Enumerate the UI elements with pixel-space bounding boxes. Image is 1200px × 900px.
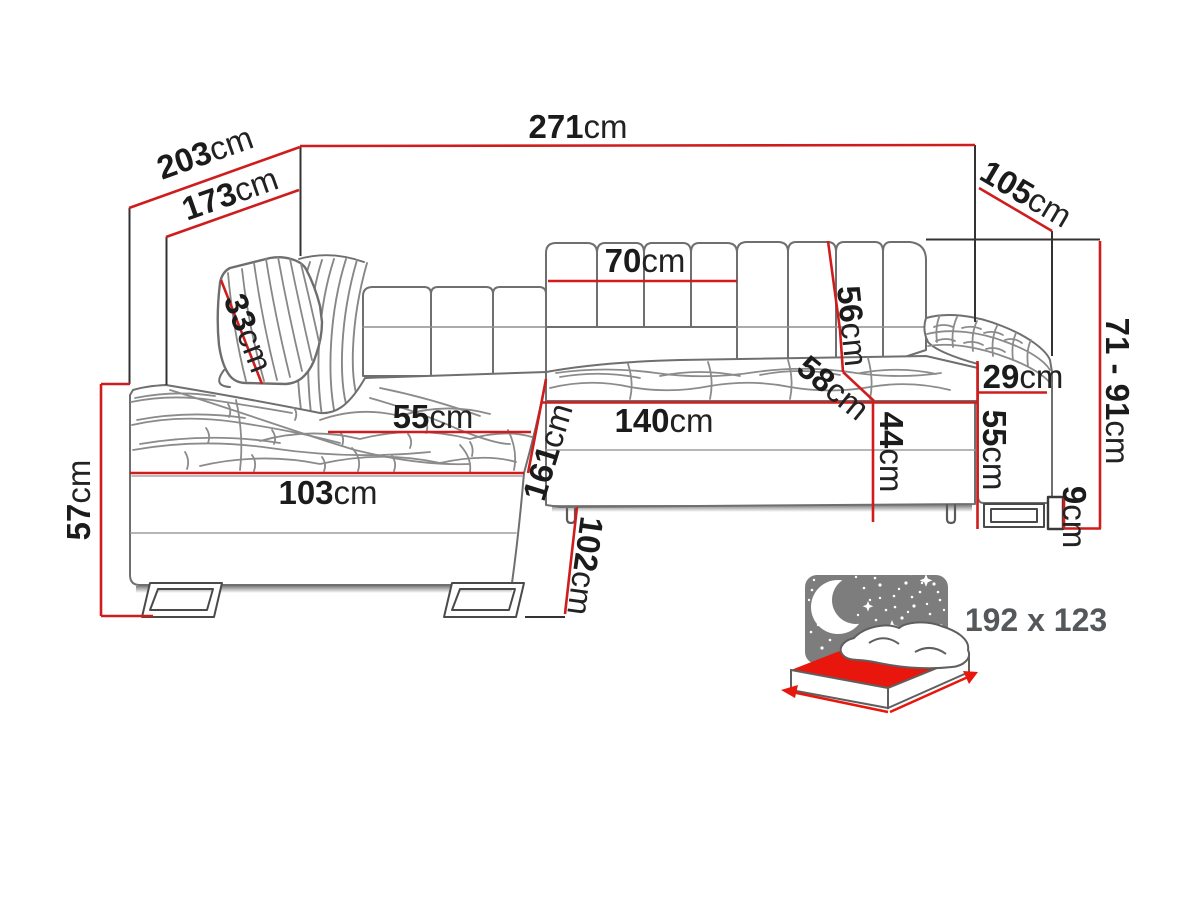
svg-text:57cm: 57cm	[60, 460, 97, 541]
svg-text:71 - 91cm: 71 - 91cm	[1099, 318, 1136, 465]
svg-text:271cm: 271cm	[528, 108, 627, 145]
svg-text:140cm: 140cm	[614, 402, 713, 439]
svg-text:44cm: 44cm	[873, 412, 910, 493]
svg-text:55cm: 55cm	[976, 410, 1013, 491]
svg-text:55cm: 55cm	[393, 398, 474, 435]
svg-text:70cm: 70cm	[605, 242, 686, 279]
svg-text:9cm: 9cm	[1056, 486, 1093, 548]
svg-text:103cm: 103cm	[278, 474, 377, 511]
svg-text:192 x 123: 192 x 123	[965, 602, 1107, 638]
svg-text:29cm: 29cm	[983, 358, 1064, 395]
